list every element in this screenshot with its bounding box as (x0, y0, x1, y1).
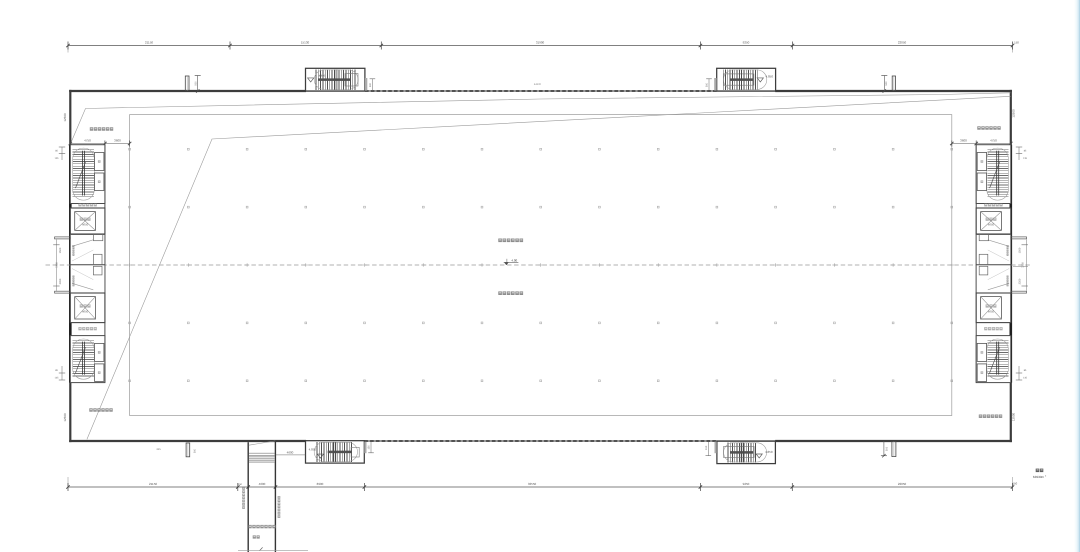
svg-text:7250: 7250 (1022, 262, 1025, 268)
svg-text:150: 150 (705, 445, 708, 450)
svg-text:150: 150 (238, 483, 243, 486)
svg-text:8900: 8900 (317, 482, 324, 486)
svg-text:2350: 2350 (1018, 278, 1021, 284)
svg-text:12500: 12500 (63, 113, 67, 122)
svg-text:4750: 4750 (990, 139, 997, 143)
svg-text:500: 500 (885, 81, 888, 86)
svg-text:12500: 12500 (1012, 109, 1016, 118)
svg-text:4650: 4650 (82, 223, 89, 227)
svg-text:4.850: 4.850 (766, 74, 774, 78)
svg-text:500: 500 (369, 82, 372, 87)
svg-text:4750: 4750 (84, 139, 91, 143)
svg-text:150: 150 (368, 445, 371, 450)
svg-text:31900: 31900 (536, 41, 545, 45)
svg-text:4650: 4650 (988, 223, 995, 227)
svg-text:150: 150 (1014, 41, 1019, 45)
svg-text:63930m: 63930m (1033, 475, 1045, 479)
svg-text:2350: 2350 (59, 278, 62, 284)
svg-text:4.850: 4.850 (319, 75, 326, 78)
svg-text:500: 500 (194, 81, 197, 86)
svg-text:3600: 3600 (960, 139, 967, 143)
svg-text:9250: 9250 (743, 41, 750, 45)
svg-text:4.00: 4.00 (511, 259, 517, 263)
svg-text:4600: 4600 (259, 482, 266, 486)
svg-text:12500: 12500 (1012, 412, 1016, 421)
svg-text:1500: 1500 (1018, 247, 1021, 253)
svg-text:33550: 33550 (528, 482, 537, 486)
svg-text:315: 315 (156, 448, 161, 451)
svg-text:4600: 4600 (287, 450, 294, 454)
svg-text:500: 500 (706, 82, 709, 87)
svg-text:500: 500 (885, 446, 888, 451)
svg-text:4650: 4650 (82, 309, 89, 313)
svg-text:22050: 22050 (898, 482, 907, 486)
svg-text:21150: 21150 (145, 41, 153, 45)
svg-text:9250: 9250 (743, 482, 750, 486)
svg-text:500: 500 (194, 448, 197, 453)
svg-text:150: 150 (1012, 481, 1017, 485)
svg-text:4650: 4650 (988, 309, 995, 313)
svg-text:21150: 21150 (149, 482, 157, 486)
svg-text:2: 2 (1045, 474, 1046, 477)
svg-text:12500: 12500 (63, 413, 67, 422)
svg-text:7250: 7250 (56, 262, 59, 268)
svg-text:22050: 22050 (898, 41, 907, 45)
svg-text:4.850: 4.850 (309, 448, 317, 452)
svg-text:4.850: 4.850 (765, 450, 773, 454)
svg-text:1500: 1500 (59, 247, 62, 253)
svg-text:44600: 44600 (534, 83, 542, 86)
svg-text:15130: 15130 (301, 41, 310, 45)
svg-text:3600: 3600 (114, 139, 121, 143)
